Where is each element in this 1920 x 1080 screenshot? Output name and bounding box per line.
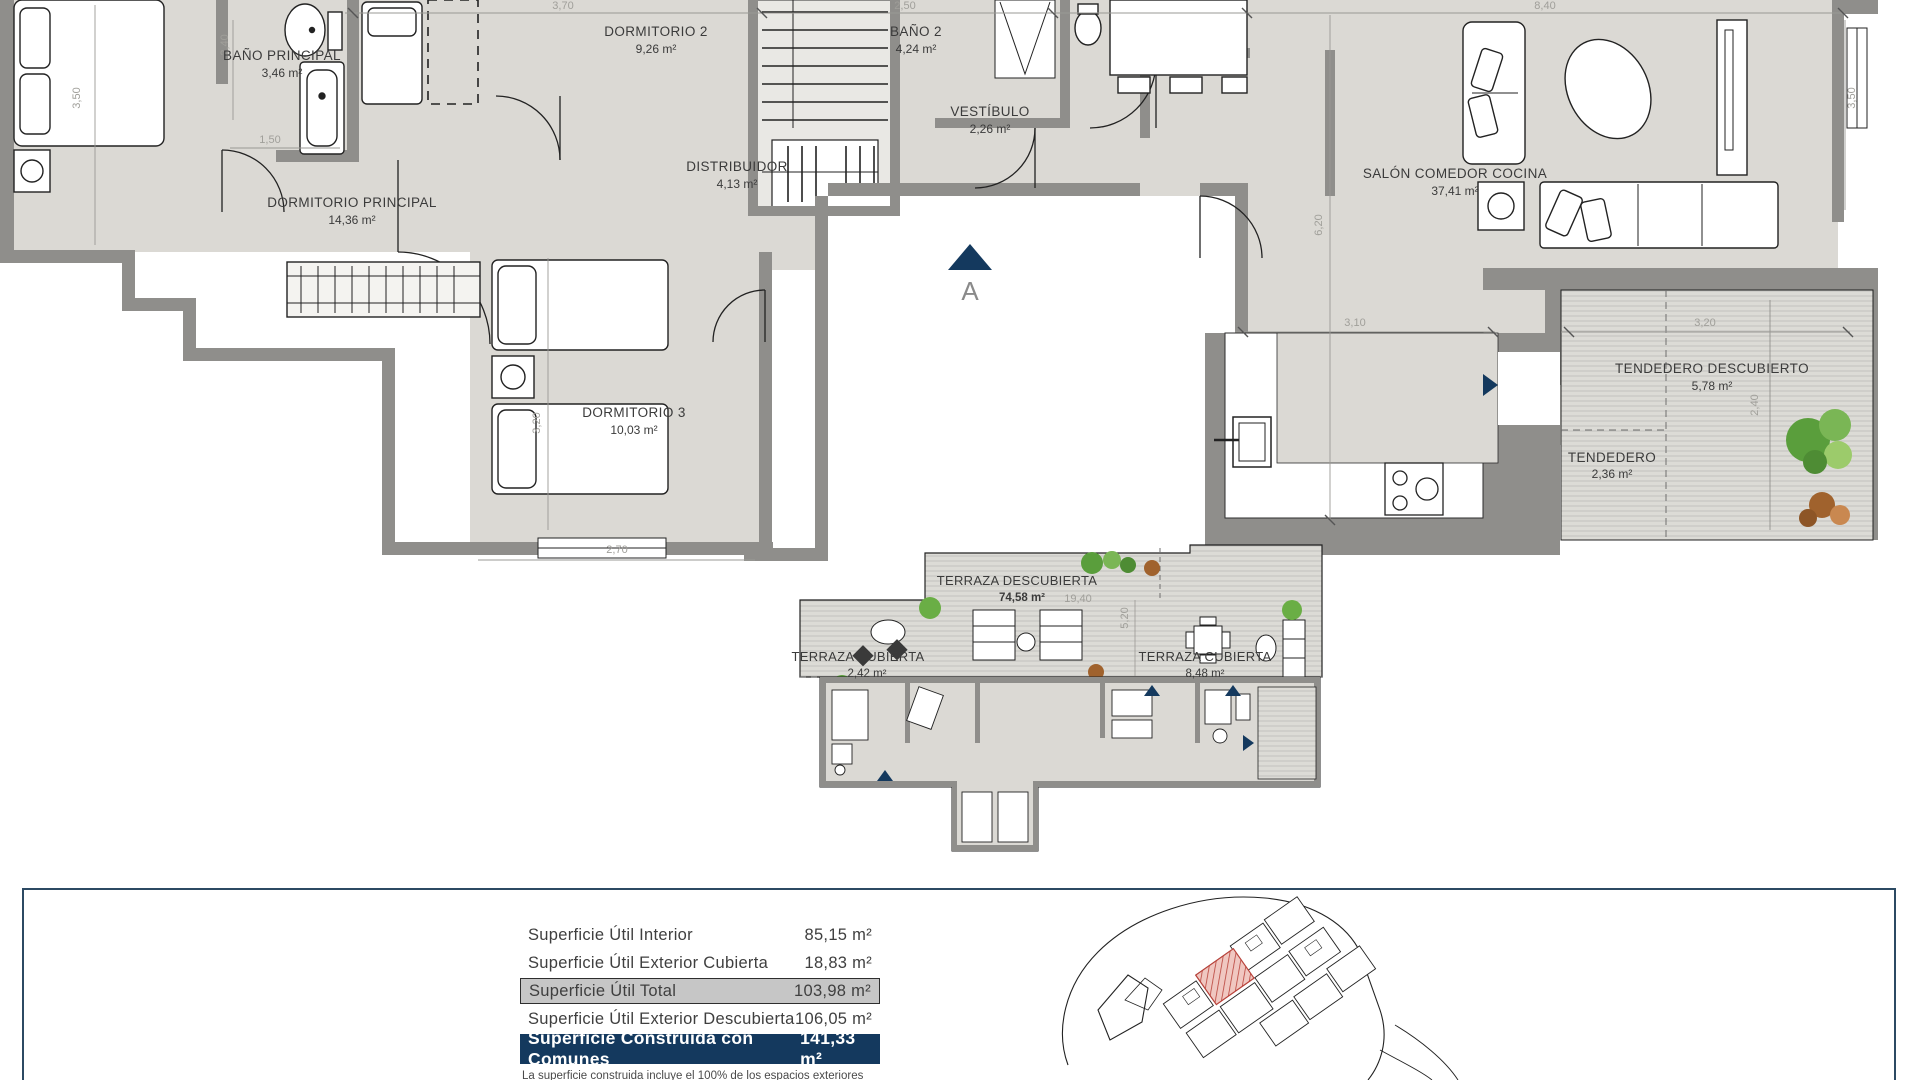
room-area: 5,78 m² (1692, 379, 1733, 393)
key-plan-apartment (820, 677, 1320, 851)
row-label: Superficie Útil Interior (528, 926, 693, 945)
toilet2-icon (1075, 11, 1101, 45)
dim-label: 2,50 (894, 0, 915, 12)
dim-label: 3,10 (1344, 317, 1365, 329)
room-area: 3,46 m² (262, 66, 303, 80)
row-label: Superficie Útil Exterior Cubierta (528, 954, 768, 973)
table-row: Superficie Útil Exterior Cubierta 18,83 … (520, 950, 880, 976)
summary-panel (22, 888, 1896, 1080)
room-label-tendedero: TENDEDERO (1568, 450, 1656, 465)
room-label-bano-principal: BAÑO PRINCIPAL (223, 48, 341, 63)
daybed (1540, 182, 1778, 248)
stove-icon (1385, 463, 1443, 515)
dim-label: 1,50 (259, 134, 280, 146)
dim-label: 3,20 (1694, 317, 1715, 329)
table-row: Superficie Útil Interior 85,15 m² (520, 922, 880, 948)
row-value: 103,98 m² (794, 982, 871, 1001)
dim-label: 3,70 (552, 0, 573, 12)
room-label-tendedero-descubierto: TENDEDERO DESCUBIERTO (1615, 361, 1809, 376)
side-table (1478, 182, 1524, 230)
row-value: 85,15 m² (804, 926, 872, 945)
kp-area: 8,48 m² (1186, 668, 1225, 680)
sofa (1463, 22, 1525, 164)
kitchen-island (1110, 0, 1247, 75)
lounger (973, 610, 1015, 660)
room-area: 4,24 m² (896, 42, 937, 56)
room-label-dormitorio-principal: DORMITORIO PRINCIPAL (267, 195, 437, 210)
row-value: 106,05 m² (795, 1010, 872, 1029)
table-row-total: Superficie Útil Total 103,98 m² (520, 978, 880, 1004)
room-area: 9,26 m² (636, 42, 677, 56)
pouf (871, 620, 905, 644)
kp-area: 2,42 m² (848, 668, 887, 680)
row-label: Superficie Útil Total (529, 982, 676, 1001)
kp-label-terraza-cubierta-2: TERRAZA CUBIERTA (1139, 649, 1272, 664)
room-area: 4,13 m² (717, 177, 758, 191)
room-label-dormitorio2: DORMITORIO 2 (604, 24, 708, 39)
kp-area: 74,58 m² (999, 592, 1045, 604)
tv-bench (1717, 20, 1747, 175)
kp-label-terraza-descubierta: TERRAZA DESCUBIERTA (937, 573, 1098, 588)
nightstand (14, 150, 50, 192)
room-label-distribuidor: DISTRIBUIDOR (686, 159, 788, 174)
dim-label: 5,20 (1119, 607, 1131, 628)
row-value: 18,83 m² (804, 954, 872, 973)
bathtub-icon (300, 62, 344, 154)
key-plan: TERRAZA DESCUBIERTA 74,58 m² 19,40 TERRA… (792, 545, 1322, 851)
table-row-constructed: Superficie Construida con Comunes 141,33… (520, 1034, 880, 1064)
row-label: Superficie Construida con Comunes (528, 1028, 800, 1070)
floor-plan-page: A 3,50 2,40 1,50 3,70 2,50 8,40 3,50 6,2… (0, 0, 1920, 1080)
dim-label: 8,40 (1534, 0, 1555, 12)
row-label: Superficie Útil Exterior Descubierta (528, 1010, 795, 1029)
row-value: 141,33 m² (800, 1028, 872, 1070)
dim-label: 6,20 (1313, 214, 1325, 235)
room-area: 2,26 m² (970, 122, 1011, 136)
dim-label: 3,20 (531, 412, 543, 433)
dim-label: 19,40 (1064, 593, 1092, 605)
stairwell (755, 0, 895, 215)
tendedero-terrace (1561, 290, 1873, 540)
site-plan (1050, 890, 1470, 1080)
room-area: 14,36 m² (328, 213, 375, 227)
dim-label: 3,50 (71, 87, 83, 108)
table-footnote: La superficie construida incluye el 100%… (520, 1070, 880, 1080)
section-letter: A (961, 276, 979, 306)
room-area: 10,03 m² (610, 423, 657, 437)
dim-label: 2,40 (1749, 394, 1761, 415)
main-floor-plan: A 3,50 2,40 1,50 3,70 2,50 8,40 3,50 6,2… (0, 0, 1920, 880)
shelf (1283, 620, 1305, 678)
nightstand-dorm3 (492, 356, 534, 398)
room-label-bano2: BAÑO 2 (890, 24, 942, 39)
room-area: 37,41 m² (1431, 184, 1478, 198)
wardrobe (287, 262, 480, 317)
lounger (1040, 610, 1082, 660)
room-area: 2,36 m² (1592, 467, 1633, 481)
room-label-dormitorio3: DORMITORIO 3 (582, 405, 686, 420)
dim-label: 2,70 (606, 544, 627, 556)
dim-label: 3,50 (1846, 87, 1858, 108)
patio-void (828, 196, 1235, 580)
room-label-vestibulo: VESTÍBULO (950, 104, 1029, 119)
terrace-table (1017, 633, 1035, 651)
room-label-salon: SALÓN COMEDOR COCINA (1363, 166, 1547, 181)
kp-label-terraza-cubierta-1: TERRAZA CUBIERTA (792, 649, 925, 664)
surface-summary-table: Superficie Útil Interior 85,15 m² Superf… (520, 922, 880, 1080)
